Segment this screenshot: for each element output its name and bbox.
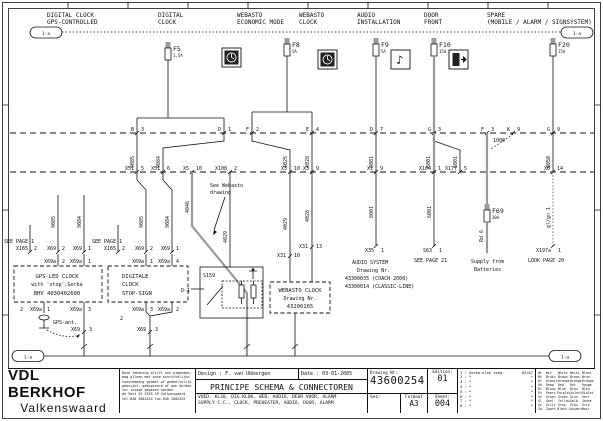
company-block: VDL BERKHOF Valkenswaard [8, 369, 120, 413]
svg-text:X69a: X69a [70, 259, 82, 265]
svg-text:X69a: X69a [158, 307, 170, 313]
door-icon [449, 50, 468, 69]
s159-switch: S159 D-1 [181, 267, 263, 318]
fuse-f20: F20 15A [550, 38, 570, 56]
gps-ant-label: GPS-ant. [53, 320, 77, 326]
svg-text:1: 1 [438, 166, 441, 172]
harness-bus-1: B3 D1 F2 E4 D7 G3 F3 K9 G9 [10, 127, 594, 135]
svg-text:5A: 5A [381, 49, 386, 54]
svg-text:3: 3 [141, 127, 144, 133]
svg-text:CLOCK: CLOCK [158, 19, 176, 26]
svg-text:4029: 4029 [283, 218, 289, 230]
svg-text:1: 1 [228, 127, 231, 133]
svg-text:Rd 6: Rd 6 [479, 230, 485, 242]
svg-text:9084: 9084 [77, 216, 83, 228]
svg-text:1-a: 1-a [42, 31, 50, 37]
list-row: tel.040 2082424 fax.040 2082425 [122, 397, 193, 401]
svg-text:5: 5 [464, 166, 467, 172]
svg-text:X31: X31 [299, 244, 308, 250]
svg-text:X3: X3 [303, 166, 309, 172]
list-row: 8 : ** [460, 404, 533, 409]
edition-history: 1 : Gorba-klok toeg.03/072 : **3 : **4 :… [458, 369, 536, 413]
audio-column: 8001 X351 AUDIO SYSTEM Drawing Nr. 43300… [345, 172, 414, 290]
note-arrow [214, 197, 225, 230]
header-door-front: DOOR [424, 12, 439, 19]
svg-text:X69a: X69a [132, 307, 144, 313]
music-note-icon: ♪ [391, 50, 410, 69]
svg-text:1: 1 [558, 248, 561, 254]
harness-bus-2: X515 X516 X510 X1082 X310 X39 X19 X1041 … [10, 166, 594, 174]
svg-text:X108: X108 [215, 166, 227, 172]
svg-text:3: 3 [155, 327, 158, 333]
svg-text:X165: X165 [104, 246, 116, 252]
svg-text:6: 6 [167, 166, 170, 172]
svg-text:4029: 4029 [223, 231, 229, 243]
title-block: VDL BERKHOF Valkenswaard Deze tekening b… [8, 368, 595, 413]
svg-text:X197a: X197a [536, 248, 551, 254]
svg-text:F20: F20 [558, 41, 570, 49]
svg-text:X69a: X69a [132, 259, 144, 265]
svg-text:2: 2 [256, 127, 259, 133]
svg-text:10: 10 [294, 166, 300, 172]
svg-text:1: 1 [88, 259, 91, 265]
svg-text:9: 9 [316, 166, 319, 172]
svg-text:X69a: X69a [44, 259, 56, 265]
svg-text:SEE PAGE 21: SEE PAGE 21 [414, 258, 447, 264]
fuse-f9: F9 5A [373, 38, 389, 56]
svg-text:2: 2 [62, 246, 65, 252]
svg-text:1: 1 [88, 246, 91, 252]
svg-text:DIGITALE: DIGITALE [122, 274, 149, 280]
see-page-1: SEE PAGE 1 [4, 239, 34, 245]
feed-wires [137, 56, 553, 133]
battery-supply-column: Rd 6 Supply from Batteries [471, 222, 504, 273]
svg-text:STOP-SIGN: STOP-SIGN [122, 291, 152, 297]
svg-text:1: 1 [439, 248, 442, 254]
svg-text:4046: 4046 [185, 201, 191, 213]
company-name: VDL BERKHOF [8, 369, 119, 401]
list-row: ZwZwartBlackSchwarzNoir [538, 407, 594, 411]
svg-text:G: G [428, 127, 431, 133]
svg-text:CLOCK: CLOCK [299, 19, 317, 26]
svg-text:X3: X3 [281, 166, 287, 172]
svg-text:Supply from: Supply from [471, 259, 504, 265]
svg-text:INSTALLATION: INSTALLATION [357, 19, 401, 26]
svg-text:D-1: D-1 [181, 288, 190, 294]
svg-text:2: 2 [20, 307, 23, 313]
svg-text:9: 9 [517, 127, 520, 133]
list-row: mag alleen met onze schriftelijke [122, 375, 193, 379]
gez-label: Gez: [368, 394, 401, 413]
svg-text:8001: 8001 [369, 206, 375, 218]
svg-text:43200165: 43200165 [287, 304, 314, 310]
svg-text:43300014 (CLASSIC-LINE): 43300014 (CLASSIC-LINE) [345, 284, 414, 290]
clock-connector-row-2: X69a2 X69a1 X69a1 X69a4 [44, 259, 179, 265]
disclaimer-block: Deze tekening blijft ons eigendom,mag al… [120, 369, 196, 413]
fuse-f69: F69 30A [484, 204, 504, 222]
door-column: 6001 S631 SEE PAGE 21 [414, 172, 447, 264]
svg-text:X69: X69 [71, 327, 80, 333]
svg-text:2: 2 [62, 259, 65, 265]
edition-value: 01 [428, 374, 457, 384]
svg-text:X69a: X69a [30, 307, 42, 313]
see-webasto-note: See Webasto [210, 183, 243, 189]
company-city: Valkenswaard [20, 401, 106, 413]
svg-text:1-a: 1-a [573, 31, 581, 37]
svg-text:Batteries: Batteries [474, 267, 501, 273]
svg-text:F69: F69 [492, 207, 504, 215]
sheet-value: 004 [428, 399, 457, 409]
svg-text:S159: S159 [203, 273, 215, 279]
svg-text:X69a: X69a [158, 259, 170, 265]
svg-text:G: G [547, 127, 550, 133]
svg-text:1: 1 [47, 307, 50, 313]
column-headers: DIGITAL CLOCK GPS-CONTROLLED DIGITAL CLO… [47, 12, 592, 26]
webasto-clock-wires [288, 172, 314, 356]
svg-text:1: 1 [150, 259, 153, 265]
x197a-column: gl/gn 1 X197a1 LOOK PAGE 20 [528, 172, 564, 264]
svg-text:X104: X104 [419, 166, 431, 172]
svg-text:10: 10 [294, 253, 300, 259]
svg-text:X51: X51 [125, 166, 134, 172]
svg-text:F: F [246, 127, 249, 133]
svg-text:1: 1 [381, 248, 384, 254]
svg-text:5: 5 [141, 166, 144, 172]
svg-text:2: 2 [120, 316, 123, 322]
header-webasto-clock: WEBASTO [299, 12, 325, 19]
wire-color-legend: WtWitWhiteWeissBlancBnBruinBrownBraunBru… [536, 369, 595, 413]
subtitle-en: SUPPLY C.C., CLOCK, PREHEATER, AUDIO, DO… [198, 401, 365, 407]
svg-text:3: 3 [150, 307, 153, 313]
svg-text:(MOBILE / ALARM / SIGNSYSTEM): (MOBILE / ALARM / SIGNSYSTEM) [487, 19, 592, 26]
svg-text:9085: 9085 [51, 216, 57, 228]
svg-text:1,5A: 1,5A [173, 53, 183, 58]
see-page-1: SEE PAGE 1 [92, 239, 122, 245]
svg-text:F8: F8 [292, 41, 300, 49]
svg-text:2: 2 [150, 246, 153, 252]
svg-text:3: 3 [89, 327, 92, 333]
svg-text:4: 4 [316, 127, 319, 133]
header-spare: SPARE [487, 12, 505, 19]
svg-text:F5: F5 [173, 45, 181, 53]
svg-text:15A: 15A [439, 49, 447, 54]
svg-text:15A: 15A [558, 49, 566, 54]
digitale-clock-box: DIGITALE CLOCK STOP-SIGN [108, 266, 188, 302]
top-rail: 1-a 1-a [30, 27, 593, 38]
svg-text:X1: X1 [367, 166, 373, 172]
svg-text:1: 1 [176, 246, 179, 252]
svg-text:K: K [507, 127, 510, 133]
ground-rail: 1-a 1-a [12, 351, 581, 362]
svg-text:ECONOMIC MODE: ECONOMIC MODE [237, 19, 284, 26]
svg-text:X165: X165 [16, 246, 28, 252]
svg-text:X177: X177 [445, 166, 457, 172]
svg-text:drawing: drawing [210, 190, 231, 196]
designer: Design : F. van Ubbergen [196, 369, 299, 379]
svg-text:1-a: 1-a [561, 354, 569, 360]
svg-text:LOOK PAGE 20: LOOK PAGE 20 [528, 258, 564, 264]
svg-text:E: E [306, 127, 309, 133]
svg-text:X35: X35 [365, 248, 374, 254]
clock-connector-row-1: X1652 X692 X691 X1652 X692 X691 [16, 246, 179, 252]
svg-text:14: 14 [557, 166, 563, 172]
svg-text:GPS-LED CLOCK: GPS-LED CLOCK [35, 274, 79, 280]
schematic-canvas: DIGITAL CLOCK GPS-CONTROLLED DIGITAL CLO… [0, 0, 603, 421]
fuse-f10: F10 15A [431, 38, 451, 56]
drawing-date: Date : 03-01-2005 [299, 369, 367, 379]
svg-text:2: 2 [122, 246, 125, 252]
svg-text:B: B [131, 127, 134, 133]
svg-text:D: D [370, 127, 373, 133]
svg-text:5A: 5A [292, 49, 297, 54]
svg-text:X69a: X69a [70, 307, 82, 313]
clock-wire-labels: 9085 9084 9085 9084 [51, 216, 171, 228]
header-webasto-economic: WEBASTO [237, 12, 263, 19]
svg-text:13: 13 [316, 244, 322, 250]
svg-text:9084: 9084 [165, 216, 171, 228]
svg-text:X31: X31 [277, 253, 286, 259]
svg-text:1-a: 1-a [24, 354, 32, 360]
svg-text:4028: 4028 [305, 210, 311, 222]
svg-text:D: D [218, 127, 221, 133]
list-row: de Vest 55 5555 XP Valkenswaard [122, 392, 193, 396]
gps-led-clock-box: GPS-LED CLOCK with 'stop',Gorba BHV 4030… [14, 266, 102, 302]
edition-sheet-block: Edition: 01 Sheet: 004 [428, 369, 458, 413]
svg-text:gl/gn 1: gl/gn 1 [546, 207, 552, 228]
svg-text:10: 10 [196, 166, 202, 172]
svg-text:9085: 9085 [139, 216, 145, 228]
svg-text:BHV 4030402600: BHV 4030402600 [34, 291, 80, 297]
drawing-title: PRINCIPE SCHEMA & CONNECTOREN [196, 380, 367, 394]
svg-text:30A: 30A [492, 215, 500, 220]
fuse-f8: F8 5A [284, 38, 300, 56]
svg-text:1000: 1000 [493, 138, 505, 144]
svg-text:X6: X6 [544, 166, 550, 172]
clock-icon [318, 50, 337, 69]
svg-text:AUDIO SYSTEM: AUDIO SYSTEM [352, 260, 388, 266]
header-audio: AUDIO [357, 12, 375, 19]
svg-text:2: 2 [34, 246, 37, 252]
drawing-number-block: Drawing Nr: 43600254 Gez: Formaat A3 [368, 369, 428, 413]
svg-text:X5: X5 [183, 166, 189, 172]
svg-text:WEBASTO CLOCK: WEBASTO CLOCK [278, 288, 322, 294]
gray-wire-4046 [192, 172, 247, 356]
svg-text:X69: X69 [73, 246, 82, 252]
svg-text:2: 2 [176, 307, 179, 313]
header-digital-clock: DIGITAL [158, 12, 184, 19]
svg-text:43300035 (COACH 2000): 43300035 (COACH 2000) [345, 276, 408, 282]
header-digital-clock-gps: DIGITAL CLOCK [47, 12, 94, 19]
svg-text:3: 3 [88, 307, 91, 313]
inter-bus-labels: 9085 9084 4025 4028 8001 6001 6001 1000 … [130, 138, 552, 168]
drawing-title-block: Design : F. van Ubbergen Date : 03-01-20… [196, 369, 368, 413]
svg-text:F: F [481, 127, 484, 133]
svg-text:7: 7 [380, 127, 383, 133]
svg-text:FRONT: FRONT [424, 19, 442, 26]
svg-text:9: 9 [380, 166, 383, 172]
svg-text:with 'stop',Gorba: with 'stop',Gorba [31, 282, 82, 288]
svg-text:4: 4 [176, 259, 179, 265]
svg-text:2: 2 [234, 166, 237, 172]
svg-text:X69: X69 [47, 246, 56, 252]
svg-text:F9: F9 [381, 41, 389, 49]
svg-text:6001: 6001 [427, 206, 433, 218]
svg-text:Drawing Nr.: Drawing Nr. [357, 268, 390, 274]
drawing-nr-value: 43600254 [370, 375, 425, 387]
svg-text:9: 9 [557, 127, 560, 133]
timer-icon [222, 48, 241, 67]
svg-text:X69: X69 [161, 246, 170, 252]
webasto-clock-box: WEBASTO CLOCK Drawing Nr. 43200165 [270, 282, 330, 313]
schematic-page: DIGITAL CLOCK GPS-CONTROLLED DIGITAL CLO… [0, 0, 603, 421]
svg-text:X69: X69 [137, 327, 146, 333]
svg-text:GPS-CONTROLLED: GPS-CONTROLLED [47, 19, 98, 26]
svg-text:3: 3 [491, 127, 494, 133]
format-value: A3 [401, 399, 427, 408]
svg-text:S63: S63 [423, 248, 432, 254]
svg-text:X51: X51 [151, 166, 160, 172]
svg-text:♪: ♪ [396, 53, 403, 67]
fuse-f5: F5 1,5A [165, 42, 183, 60]
svg-text:F10: F10 [439, 41, 451, 49]
svg-text:Drawing Nr.: Drawing Nr. [283, 296, 316, 302]
svg-text:3: 3 [438, 127, 441, 133]
svg-text:X69: X69 [135, 246, 144, 252]
svg-text:CLOCK: CLOCK [122, 282, 139, 288]
